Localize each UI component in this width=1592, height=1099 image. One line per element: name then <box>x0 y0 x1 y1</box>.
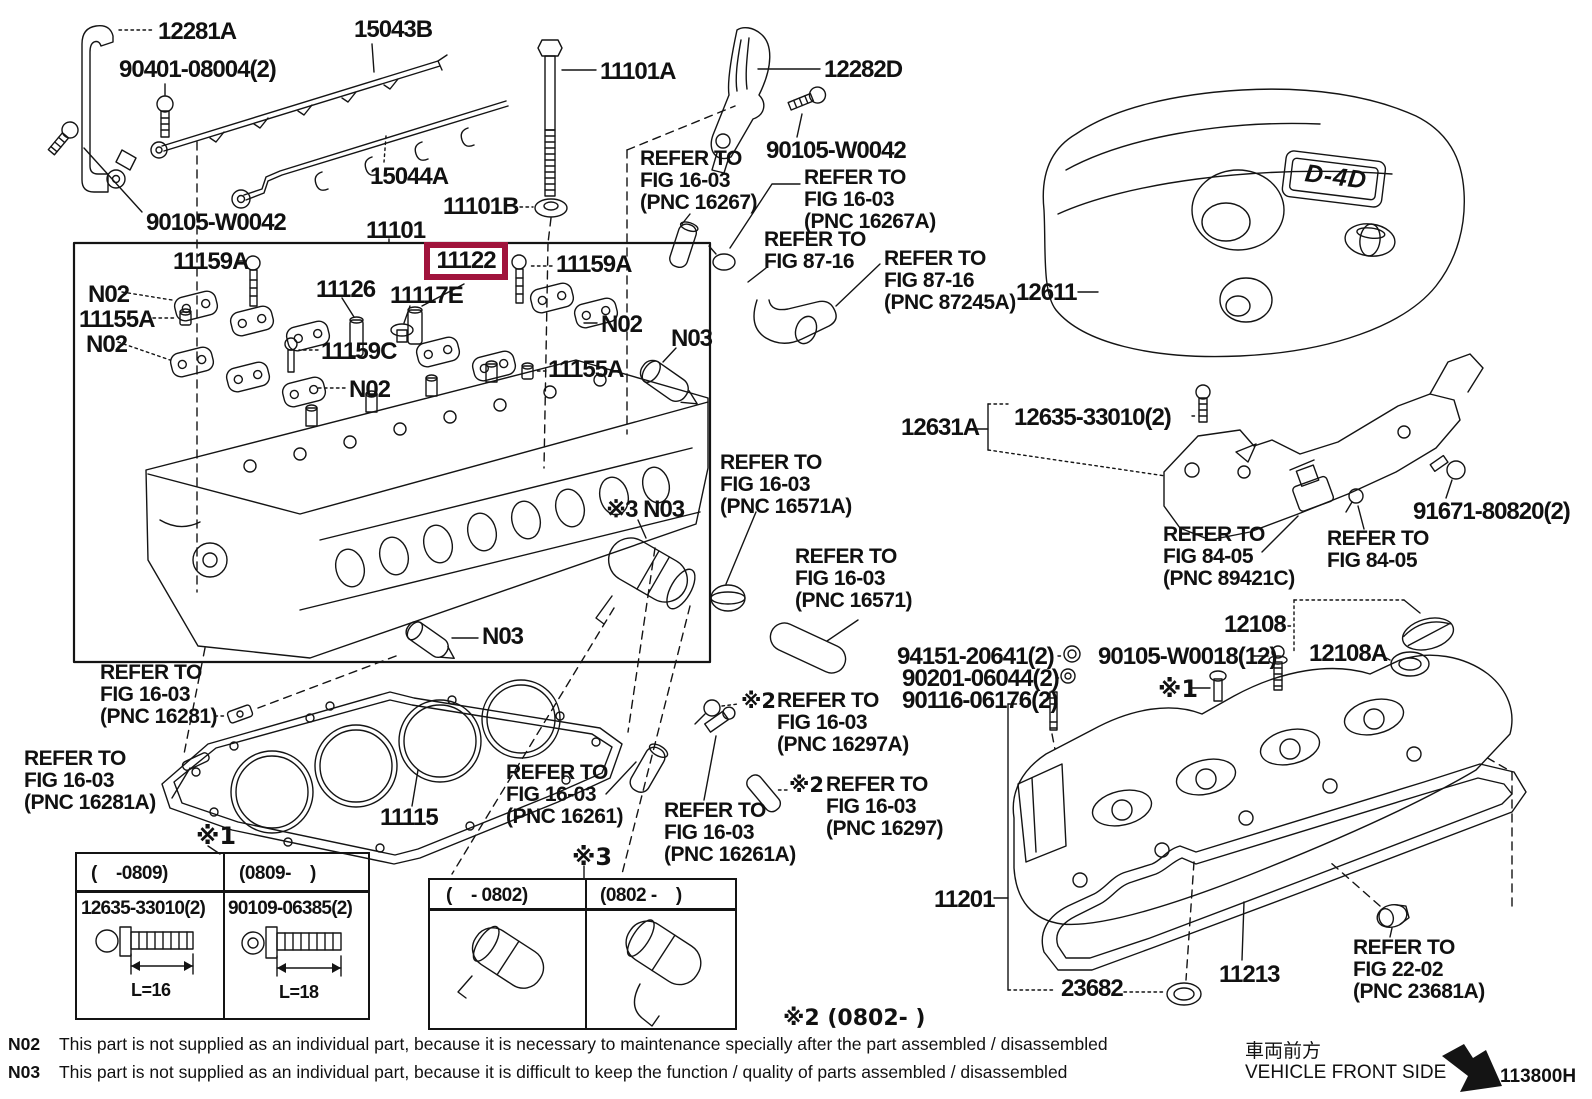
mark-x1-table: ※1 <box>196 824 236 848</box>
label-11101b[interactable]: 11101B <box>443 195 518 219</box>
ref-fig16-03-16297a: REFER TO FIG 16-03 (PNC 16297A) <box>777 690 909 756</box>
label-n02-2[interactable]: N02 <box>86 333 127 357</box>
ref-fig16-03-16261a: REFER TO FIG 16-03 (PNC 16261A) <box>664 800 796 866</box>
label-15043b[interactable]: 15043B <box>354 18 432 42</box>
label-11159c[interactable]: 11159C <box>321 340 396 364</box>
label-11159a-left[interactable]: 11159A <box>173 250 248 274</box>
vehicle-front-kanji: 車両前方 <box>1245 1036 1321 1063</box>
figure-code: 113800H <box>1500 1066 1576 1088</box>
table-x1-col2-header: (0809- ) <box>239 863 316 885</box>
table-x3-col1-header: ( - 0802) <box>446 885 528 907</box>
label-91671[interactable]: 91671-80820(2) <box>1413 500 1570 524</box>
label-23682[interactable]: 23682 <box>1061 977 1123 1001</box>
table-x1-col2-dim: L=18 <box>279 982 319 1003</box>
ref-fig16-03-16267: REFER TO FIG 16-03 (PNC 16267) <box>640 148 757 214</box>
label-n02-right[interactable]: N02 <box>601 313 642 337</box>
label-12635[interactable]: 12635-33010(2) <box>1014 406 1171 430</box>
mark-x2-a: ※2 <box>741 691 776 712</box>
table-x1-col1-part[interactable]: 12635-33010(2) <box>81 898 205 920</box>
label-15044a[interactable]: 15044A <box>370 165 448 189</box>
ref-fig16-03-16571: REFER TO FIG 16-03 (PNC 16571) <box>795 546 912 612</box>
label-90105-w0042-left[interactable]: 90105-W0042 <box>146 211 286 235</box>
cylinder-head-body <box>146 360 708 754</box>
ref-fig16-03-16261: REFER TO FIG 16-03 (PNC 16261) <box>506 762 623 828</box>
label-11101[interactable]: 11101 <box>366 219 425 243</box>
label-11101a[interactable]: 11101A <box>600 60 675 84</box>
table-x1-col2-part[interactable]: 90109-06385(2) <box>228 898 352 920</box>
label-90105-w0042-top[interactable]: 90105-W0042 <box>766 139 906 163</box>
note-n02: N02 This part is not supplied as an indi… <box>8 1034 1108 1055</box>
table-x3-col2-header: (0802 - ) <box>600 885 682 907</box>
label-11159a-right[interactable]: 11159A <box>556 253 631 277</box>
ref-fig84-05: REFER TO FIG 84-05 <box>1327 528 1429 572</box>
label-n03-right[interactable]: N03 <box>671 327 712 351</box>
label-11155a-right[interactable]: 11155A <box>548 358 623 382</box>
label-11126[interactable]: 11126 <box>316 278 375 302</box>
note-x2-0802: ※2 (0802- ) <box>783 1008 925 1030</box>
ref-fig87-16-87245a: REFER TO FIG 87-16 (PNC 87245A) <box>884 248 1016 314</box>
head-bolt-11101a <box>538 40 596 196</box>
bolt-90105-w0042-top <box>787 85 828 137</box>
ref-fig16-03-16267a: REFER TO FIG 16-03 (PNC 16267A) <box>804 167 936 233</box>
label-12282d[interactable]: 12282D <box>824 58 902 82</box>
ref-fig16-03-16281a: REFER TO FIG 16-03 (PNC 16281A) <box>24 748 156 814</box>
label-12108a[interactable]: 12108A <box>1309 642 1387 666</box>
table-x1-col1-header: ( -0809) <box>91 863 168 885</box>
label-x3-n03[interactable]: ※3 N03 <box>606 498 684 522</box>
label-12108[interactable]: 12108 <box>1224 613 1286 637</box>
label-90105-w0018[interactable]: 90105-W0018(12) <box>1098 645 1276 669</box>
ref-fig84-05-89421c: REFER TO FIG 84-05 (PNC 89421C) <box>1163 524 1295 590</box>
engine-cover-12611 <box>1043 89 1464 356</box>
parts-diagram-page: 12281A 90401-08004(2) 15043B 11101A 1228… <box>0 0 1592 1099</box>
label-11213[interactable]: 11213 <box>1219 963 1279 987</box>
label-12281a[interactable]: 12281A <box>158 20 236 44</box>
label-x1-mid: ※1 <box>1158 677 1198 701</box>
note-n02-text: This part is not supplied as an individu… <box>59 1034 1108 1054</box>
label-n02-mid[interactable]: N02 <box>349 378 390 402</box>
table-x3: ( - 0802) (0802 - ) <box>428 878 737 1030</box>
label-11201[interactable]: 11201 <box>934 888 994 912</box>
label-90401[interactable]: 90401-08004(2) <box>119 58 276 82</box>
label-11122: 11122 <box>436 247 495 275</box>
note-n03: N03 This part is not supplied as an indi… <box>8 1062 1067 1083</box>
mark-x3-table: ※3 <box>572 845 612 869</box>
label-12611[interactable]: 12611 <box>1016 281 1076 305</box>
table-x1: ( -0809) (0809- ) 12635-33010(2) 90109-0… <box>75 852 370 1020</box>
bolt-90401 <box>157 84 173 137</box>
ref-fig16-03-16281: REFER TO FIG 16-03 (PNC 16281) <box>100 662 217 728</box>
ref-fig22-02-23681a: REFER TO FIG 22-02 (PNC 23681A) <box>1353 937 1485 1003</box>
vehicle-front-arrow <box>1442 1044 1502 1092</box>
ref-fig16-03-16297: REFER TO FIG 16-03 (PNC 16297) <box>826 774 943 840</box>
mark-x2-b: ※2 <box>789 775 824 796</box>
note-n03-code: N03 <box>8 1062 40 1082</box>
washer-11101b <box>514 199 567 468</box>
plug-23681a <box>1330 862 1410 937</box>
hook-bracket-12281a <box>82 26 154 192</box>
table-x1-col1-dim: L=16 <box>131 980 171 1001</box>
vehicle-front-side-label: VEHICLE FRONT SIDE <box>1245 1062 1446 1084</box>
note-n02-code: N02 <box>8 1034 40 1054</box>
toyota-logo <box>1343 221 1397 259</box>
label-n02-1[interactable]: N02 <box>88 283 129 307</box>
label-11115[interactable]: 11115 <box>380 806 438 830</box>
label-n03-bottom[interactable]: N03 <box>482 625 523 649</box>
label-11117e[interactable]: 11117E <box>390 284 463 308</box>
note-n03-text: This part is not supplied as an individu… <box>59 1062 1067 1082</box>
ref-fig87-16: REFER TO FIG 87-16 <box>764 229 866 273</box>
highlight-box-11122[interactable]: 11122 <box>424 242 508 280</box>
label-90116[interactable]: 90116-06176(2) <box>902 689 1057 713</box>
label-12631a[interactable]: 12631A <box>901 416 979 440</box>
label-11155a-left[interactable]: 11155A <box>79 308 154 332</box>
ref-fig16-03-16571a: REFER TO FIG 16-03 (PNC 16571A) <box>720 452 852 518</box>
